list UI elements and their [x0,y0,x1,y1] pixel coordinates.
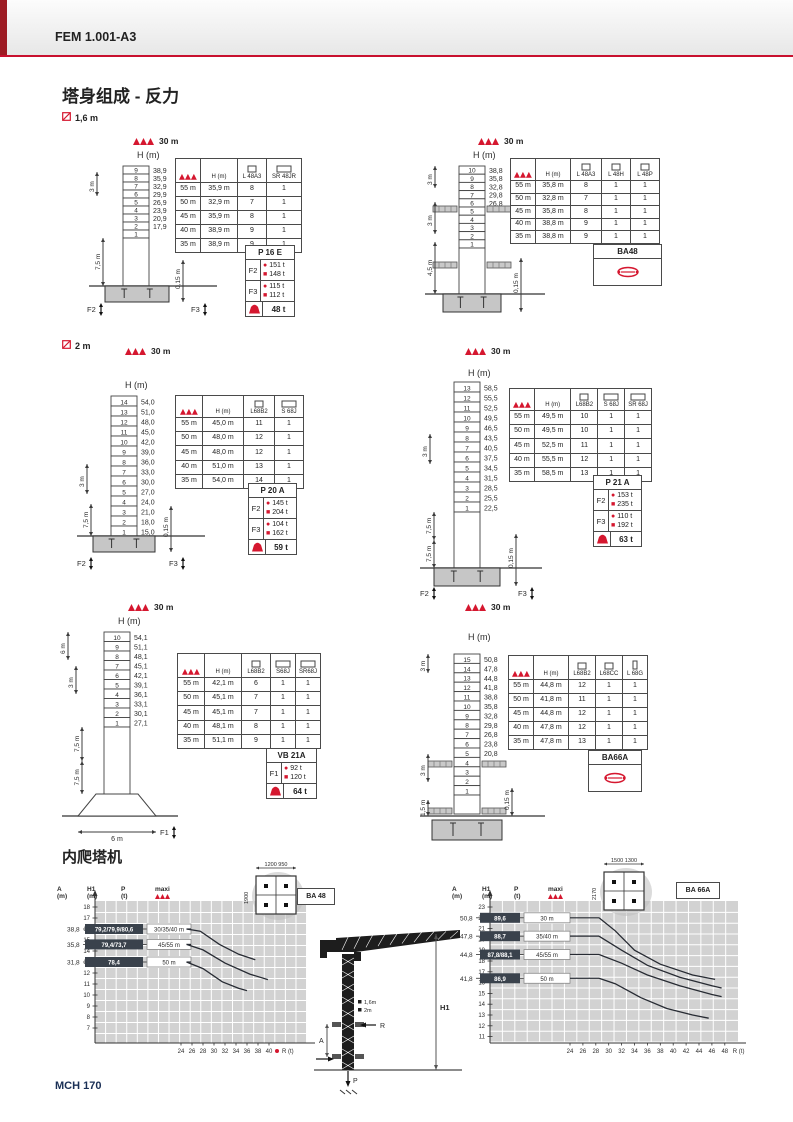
force-row: F2● 145 t■ 204 t [249,498,296,519]
section-height-value: 48,1 [134,654,148,661]
chart-column-header-unit: (t) [121,893,128,900]
p-force-label: P [353,1078,358,1085]
table-cell: 1 [623,680,648,694]
row-jib-length: 30/35/40 m [154,928,184,934]
table-row: 45 m35,9 m81 [176,211,302,225]
table-row: 50 m32,8 m711 [511,193,660,206]
section-number: 2 [115,711,119,718]
force-value: 110 t [617,513,632,520]
section-number: 2 [465,779,469,786]
table-header [176,396,203,418]
section-number: 9 [122,450,126,457]
ballast-icon [596,534,609,544]
storm-square-icon: ■ [284,774,288,781]
x-tick-label: 32 [222,1049,229,1055]
section-number: 6 [134,192,138,199]
table-cell: 55 m [510,411,535,425]
table-cell: 12 [569,708,596,722]
section-number: 12 [463,685,471,692]
section-height-value: 20,8 [484,751,498,758]
force-label: F3 [169,559,178,568]
table-cell: 38,8 m [536,218,571,231]
table-row: 55 m35,9 m81 [176,183,302,197]
jib-icon [179,173,198,180]
section-number: 9 [115,645,119,652]
section-number: 9 [465,713,469,720]
table-cell: 11 [569,694,596,708]
table-cell: 35 m [511,231,536,244]
table-cell: 10 [571,425,598,439]
force-name: F2 [246,260,261,280]
mast-section-icon [62,112,71,123]
section-number: 7 [115,664,119,671]
y-tick-label: 14 [83,949,90,955]
section-height-value: 30,1 [134,711,148,718]
footprint-top-dim: 1200 950 [265,862,288,868]
reaction-box-p-16-e: P 16 EF2● 151 t■ 148 tF3● 115 t■ 112 t48… [245,245,295,317]
section-number: 3 [465,486,469,493]
table-cell: 45 m [510,439,535,453]
force-name: F2 [249,498,264,518]
dimension-label: 3 m [79,476,86,487]
table-cell: 8 [571,206,602,219]
anchor-icon-row [594,259,661,285]
x-tick-label: 32 [618,1049,625,1055]
row-weight-value: 86,9 [494,977,506,983]
section-height-value: 42,1 [134,673,148,680]
section-number: 8 [470,184,474,191]
section-number: 5 [465,751,469,758]
dimension-label: 4,5 m [427,260,434,276]
table-cell: 1 [625,453,652,467]
table-cell: 50 m [176,197,201,211]
section-number: 6 [115,673,119,680]
y-tick-label: 18 [478,959,485,965]
ballast-row: 63 t [594,532,641,546]
section-height-value: 43,5 [484,436,498,443]
table-cell: 35 m [509,736,534,750]
table-header-label: L68B2 [244,409,274,417]
table-cell: 35,8 m [536,206,571,219]
section-number: 4 [134,208,138,215]
section-number: 6 [122,480,126,487]
x-tick-label: 36 [244,1049,251,1055]
force-value: 148 t [269,271,285,278]
table-header: L68B2 [571,389,598,411]
reaction-box-vb-21a: VB 21AF1● 92 t■ 120 t64 t [266,748,317,799]
section-number: 7 [465,446,469,453]
table-cell: 40 m [509,722,534,736]
configuration-table: H (m)L68B2L68CCL 68G55 m44,8 m121150 m41… [508,655,648,750]
jib-length-label: 30 m [128,602,173,612]
table-row: 55 m49,5 m1011 [510,411,652,425]
section-height-value: 45,0 [141,430,155,437]
table-cell: 1 [267,211,302,225]
height-column-title: H (m) [468,368,491,378]
section-number: 14 [120,400,128,407]
table-cell: 48,0 m [203,432,244,446]
service-dot-icon: ● [611,513,615,520]
row-h1-value: 31,8 [67,960,80,967]
table-cell: 1 [602,218,631,231]
table-cell: 1 [275,432,304,446]
mast-square-icon [581,163,591,171]
table-cell: 1 [631,231,660,244]
section-height-value: 17,9 [153,224,167,231]
table-cell: 49,5 m [534,411,571,425]
table-cell: 55,5 m [534,453,571,467]
force-name: F3 [249,519,264,539]
table-cell: 32,9 m [201,197,238,211]
table-cell: 49,5 m [534,425,571,439]
section-height-value: 28,5 [484,486,498,493]
chart-column-header-unit: (m) [57,893,67,900]
ballast-value: 64 t [284,787,316,796]
y-tick-label: 10 [83,993,90,999]
table-row: 40 m51,0 m131 [176,460,304,474]
section-height-value: 42,0 [141,440,155,447]
dimension-label: 3 m [427,215,434,226]
section-number: 15 [463,657,471,664]
chart-column-header: P [121,886,126,893]
table-row: 35 m51,1 m911 [178,734,321,748]
section-height-value: 38,8 [484,695,498,702]
section-number: 6 [470,201,474,208]
y-tick-label: 17 [83,916,90,922]
y-tick-label: 11 [479,1035,486,1041]
table-row: 45 m45,1 m711 [178,706,321,720]
force-label: F3 [191,305,200,314]
ballast-value: 63 t [611,535,641,544]
tie-collar [487,206,511,212]
footprint-canvas: 1500 13002170 [588,856,654,916]
jib-icon [182,668,201,675]
table-row: 35 m47,8 m1311 [509,736,648,750]
dimension-label: 3 m [420,765,427,776]
table-header: S 68J [275,396,304,418]
height-column-title: H (m) [137,150,160,160]
chart-column-header: A [452,886,457,893]
reaction-box-title: P 16 E [246,246,294,260]
section-number: 10 [468,168,476,175]
force-label: F1 [160,828,169,837]
jib-icon [514,171,533,178]
section-height-value: 25,5 [484,496,498,503]
table-cell: 12 [569,680,596,694]
section-number: 6 [465,742,469,749]
x-tick-label: 28 [592,1049,599,1055]
base-label-box: BA 48 [297,888,335,905]
table-row: 40 m55,5 m1211 [510,453,652,467]
section-height-value: 44,8 [484,676,498,683]
crane-silhouette: H1ARP1,6m2m [312,918,464,1103]
anchor-frame-icon [602,772,628,784]
section-height-value: 52,5 [484,406,498,413]
page-title: 塔身组成 - 反力 [62,82,179,107]
table-cell: 1 [271,720,296,734]
storm-square-icon: ■ [263,271,267,278]
table-cell: 9 [238,225,267,239]
table-cell: 1 [623,736,648,750]
table-cell: 50 m [509,694,534,708]
section-number: 13 [463,386,471,393]
section-number: 13 [463,676,471,683]
y-tick-label: 9 [87,1004,91,1010]
narrow-mast-icon [632,660,638,670]
table-cell: 51,1 m [205,734,242,748]
force-label: F2 [77,559,86,568]
section-number: 5 [115,683,119,690]
table-cell: 47,8 m [534,722,569,736]
force-values: ● 115 t■ 112 t [261,281,294,301]
table-cell: 1 [596,680,623,694]
table-row: 40 m38,9 m91 [176,225,302,239]
table-cell: 1 [625,439,652,453]
table-cell: 1 [267,225,302,239]
y-tick-label: 11 [84,982,91,988]
table-cell: 54,0 m [203,474,244,488]
force-label: F3 [518,589,527,598]
jib-length-label: 30 m [478,136,523,146]
chart-column-header-unit: (t) [514,893,521,900]
table-cell: 47,8 m [534,736,569,750]
force-value: 104 t [272,521,288,528]
force-row: F1● 92 t■ 120 t [267,763,316,784]
table-cell: 35,9 m [201,211,238,225]
page-header: FEM 1.001-A3 [0,0,793,57]
configuration-table: H (m)L 48A3L 48HL 48P55 m35,8 m81150 m32… [510,158,660,244]
dimension-label: 0,15 m [163,517,170,537]
table-header-label: L68B2 [569,671,595,679]
table-header: L 48A3 [571,159,602,181]
table-row: 45 m35,8 m811 [511,206,660,219]
force-values: ● 92 t■ 120 t [282,763,316,783]
x-tick-label: 30 [211,1049,218,1055]
section-number: 4 [465,760,469,767]
table-cell: 1 [267,183,302,197]
section-number: 1 [465,789,469,796]
base-rect-icon [276,165,292,173]
section-number: 9 [134,168,138,175]
x-tick-label: 34 [233,1049,240,1055]
force-value: 115 t [269,283,284,290]
table-cell: 51,0 m [203,460,244,474]
table-cell: 55 m [511,181,536,194]
table-cell: 1 [623,708,648,722]
jib-icon [125,347,147,355]
table-cell: 45 m [176,211,201,225]
base-label-box: BA 66A [676,882,720,899]
force-row: F3● 104 t■ 162 t [249,519,296,540]
table-cell: 1 [275,446,304,460]
table-cell: 12 [244,432,275,446]
storm-square-icon: ■ [611,522,615,529]
table-cell: 1 [602,193,631,206]
x-axis-label: R (t) [282,1049,294,1055]
table-header-label: S 68J [275,409,303,417]
footprint-diagram: 1500 13002170 [588,856,654,921]
storm-square-icon: ■ [266,509,270,516]
table-cell: 7 [571,193,602,206]
dimension-label: 3 m [422,446,429,457]
table-cell: 32,8 m [536,193,571,206]
tie-collar [433,206,457,212]
table-cell: 12 [244,446,275,460]
table-cell: 1 [271,734,296,748]
height-column-title: H (m) [468,632,491,642]
table-cell: 45,1 m [205,692,242,706]
reaction-box-p-20-a: P 20 AF2● 145 t■ 204 tF3● 104 t■ 162 t59… [248,483,297,555]
table-cell: 1 [296,706,321,720]
section-height-value: 33,1 [134,702,148,709]
section-number: 3 [134,216,138,223]
height-column-title: H (m) [473,150,496,160]
y-tick-label: 13 [478,1013,485,1019]
height-column-title: H (m) [125,380,148,390]
table-header-label: L 48P [631,172,659,180]
jib-length-text: 30 m [491,602,510,612]
y-tick-label: 23 [478,905,485,911]
table-cell: 55 m [176,418,203,432]
x-tick-label: 40 [266,1049,273,1055]
chart-column-header-unit: (m) [452,893,462,900]
force-value: 153 t [617,492,633,499]
table-cell: 1 [602,181,631,194]
mast-size-note: 2m [364,1008,372,1014]
table-header-label: H (m) [201,174,237,182]
section-height-value: 18,0 [141,520,155,527]
table-cell: 35 m [178,734,205,748]
section-height-value: 20,9 [153,216,167,223]
section-number: 8 [115,654,119,661]
table-cell: 1 [625,425,652,439]
dimension-label: 0,15 m [508,548,515,568]
section-height-value: 51,0 [141,410,155,417]
table-cell: 38,8 m [536,231,571,244]
table-row: 55 m45,0 m111 [176,418,304,432]
table-header-label: L 48A3 [571,172,601,180]
jib-length-text: 30 m [491,346,510,356]
section-number: 5 [470,209,474,216]
dimension-label: 1,5 m [420,800,427,816]
table-header-label: L68CC [596,671,622,679]
table-header: L 48H [602,159,631,181]
table-header: S68J [271,654,296,678]
reaction-box-title: P 21 A [594,476,641,490]
table-header: H (m) [201,159,238,183]
storm-square-icon: ■ [263,292,267,299]
anchor-icon-row [589,765,641,791]
force-row: F2● 153 t■ 235 t [594,490,641,511]
row-jib-length: 30 m [540,916,553,922]
table-row: 45 m48,0 m121 [176,446,304,460]
dimension-label: 7,5 m [426,546,433,562]
section-height-value: 36,1 [134,692,148,699]
base-rect-icon [275,660,291,668]
section-number: 10 [120,440,128,447]
table-cell: 40 m [178,720,205,734]
table-cell: 45 m [511,206,536,219]
row-weight-value: 79,4/73,7 [101,943,127,949]
table-row: 45 m44,8 m1211 [509,708,648,722]
table-cell: 9 [242,734,271,748]
section-height-value: 54,1 [134,635,148,642]
section-height-value: 38,9 [153,168,167,175]
h1-dimension-label: H1 [440,1003,450,1012]
reaction-box-ba66a: BA66A [588,750,642,792]
section-height-value: 54,0 [141,400,155,407]
base-rect-icon [603,393,619,401]
section-number: 5 [122,490,126,497]
section-number: 13 [120,410,128,417]
section-number: 3 [122,510,126,517]
jib-length-text: 30 m [504,136,523,146]
section-height-value: 29,8 [489,193,503,200]
row-weight-value: 87,8/88,1 [487,953,513,959]
table-header-label: S 68J [598,402,624,410]
table-header [509,656,534,680]
dimension-label: 7,5 m [74,736,81,752]
y-tick-label: 8 [87,1015,91,1021]
storm-square-icon: ■ [266,530,270,537]
height-column-title: H (m) [118,616,141,626]
row-h1-value: 35,8 [67,942,80,949]
jib-length-label: 30 m [465,602,510,612]
tower-drawing: H (m)1054,1951,1848,1745,1642,1539,1436,… [60,616,180,856]
table-cell: 55 m [509,680,534,694]
force-row: F2● 151 t■ 148 t [246,260,294,281]
x-tick-label: 46 [709,1049,716,1055]
section-height-value: 35,8 [489,176,503,183]
section-number: 7 [122,470,126,477]
section-height-value: 29,8 [484,723,498,730]
table-cell: 35 m [176,474,203,488]
force-label: F2 [87,305,96,314]
force-value: 204 t [272,509,288,516]
force-name: F1 [267,763,282,783]
table-header-label: SR 48JR [267,174,301,182]
table-cell: 12 [569,722,596,736]
section-height-value: 49,5 [484,416,498,423]
storm-square-icon: ■ [611,501,615,508]
standard-reference: FEM 1.001-A3 [55,30,136,44]
row-weight-value: 88,7 [494,935,506,941]
section-height-value: 21,0 [141,510,155,517]
table-header: H (m) [203,396,244,418]
table-cell: 7 [238,197,267,211]
table-cell: 40 m [176,460,203,474]
mast-square-icon [604,662,614,670]
force-label: F2 [420,589,429,598]
force-row: F3● 115 t■ 112 t [246,281,294,302]
table-cell: 1 [596,694,623,708]
section-height-value: 26,8 [484,732,498,739]
crane-diagram-d4: 30 mH (m)1358,51255,51152,51049,5946,584… [420,342,652,582]
table-cell: 45 m [176,446,203,460]
table-cell: 50 m [510,425,535,439]
table-header: SR68J [296,654,321,678]
force-row: F3● 110 t■ 192 t [594,511,641,532]
section-number: 8 [465,436,469,443]
table-row: 55 m44,8 m1211 [509,680,648,694]
table-cell: 35,9 m [201,183,238,197]
section-height-value: 31,5 [484,476,498,483]
section-height-value: 46,5 [484,426,498,433]
jib-length-label: 30 m [133,136,178,146]
section-height-value: 33,0 [141,470,155,477]
table-row: 50 m48,0 m121 [176,432,304,446]
section-height-value: 35,8 [484,704,498,711]
